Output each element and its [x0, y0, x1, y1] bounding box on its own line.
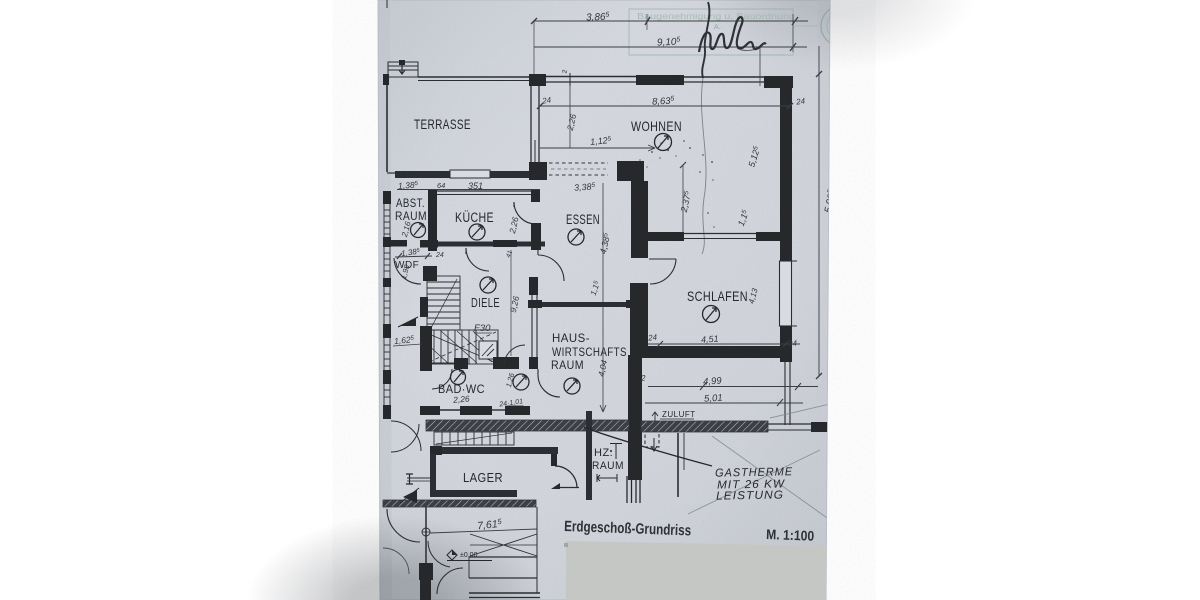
- svg-text:24: 24: [795, 96, 807, 106]
- svg-text:4,99: 4,99: [703, 375, 723, 387]
- svg-text:±0.00: ±0.00: [460, 552, 478, 559]
- svg-text:A.·: A.·: [714, 24, 723, 31]
- svg-text:64: 64: [437, 181, 445, 190]
- svg-text:2: 2: [640, 374, 646, 383]
- svg-text:RAUM: RAUM: [592, 460, 624, 472]
- svg-text:Baugenehmigung u. Bauordnung: Baugenehmigung u. Bauordnung: [637, 11, 795, 21]
- svg-text:SCHLAFEN: SCHLAFEN: [687, 288, 748, 304]
- svg-text:24: 24: [647, 333, 658, 343]
- svg-text:24: 24: [435, 252, 444, 259]
- svg-text:24: 24: [541, 95, 553, 105]
- svg-text:ABST.: ABST.: [396, 198, 425, 210]
- svg-text:4,51: 4,51: [701, 334, 719, 345]
- svg-text:DIELE: DIELE: [471, 296, 500, 310]
- svg-text:2,26: 2,26: [452, 393, 471, 405]
- svg-text:LEISTUNG: LEISTUNG: [716, 489, 784, 502]
- svg-text:5,01: 5,01: [704, 392, 723, 404]
- svg-text:RAUM: RAUM: [395, 211, 427, 223]
- svg-text:ZULUFT: ZULUFT: [662, 410, 696, 419]
- svg-text:KÜCHE: KÜCHE: [455, 210, 494, 225]
- svg-text:24: 24: [787, 339, 798, 349]
- svg-text:F30: F30: [474, 323, 491, 334]
- svg-text:M. 1:100: M. 1:100: [766, 526, 815, 544]
- svg-text:351: 351: [468, 181, 483, 191]
- svg-text:WIRTSCHAFTS: WIRTSCHAFTS: [552, 345, 627, 359]
- svg-text:WOHNEN: WOHNEN: [631, 118, 682, 134]
- svg-text:TERRASSE: TERRASSE: [414, 117, 471, 132]
- svg-text:HZ.: HZ.: [594, 447, 613, 459]
- svg-text:LAGER: LAGER: [463, 470, 503, 485]
- svg-text:RAUM: RAUM: [551, 358, 584, 372]
- svg-text:HAUS-: HAUS-: [552, 331, 590, 345]
- svg-text:ESSEN: ESSEN: [566, 212, 600, 227]
